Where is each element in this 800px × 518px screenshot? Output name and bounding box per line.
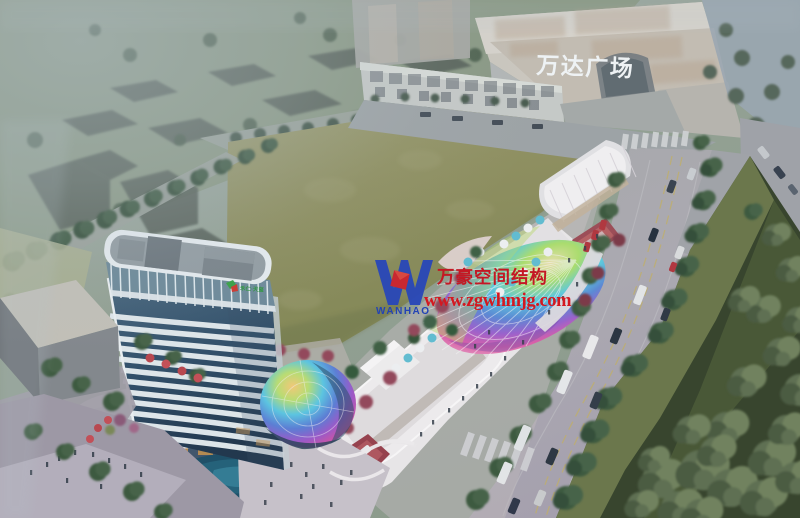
svg-text:万豪空间结构: 万豪空间结构 (436, 267, 548, 287)
svg-text:www.zgwhmjg.com: www.zgwhmjg.com (424, 291, 572, 311)
svg-text:WANHAO: WANHAO (376, 306, 431, 317)
